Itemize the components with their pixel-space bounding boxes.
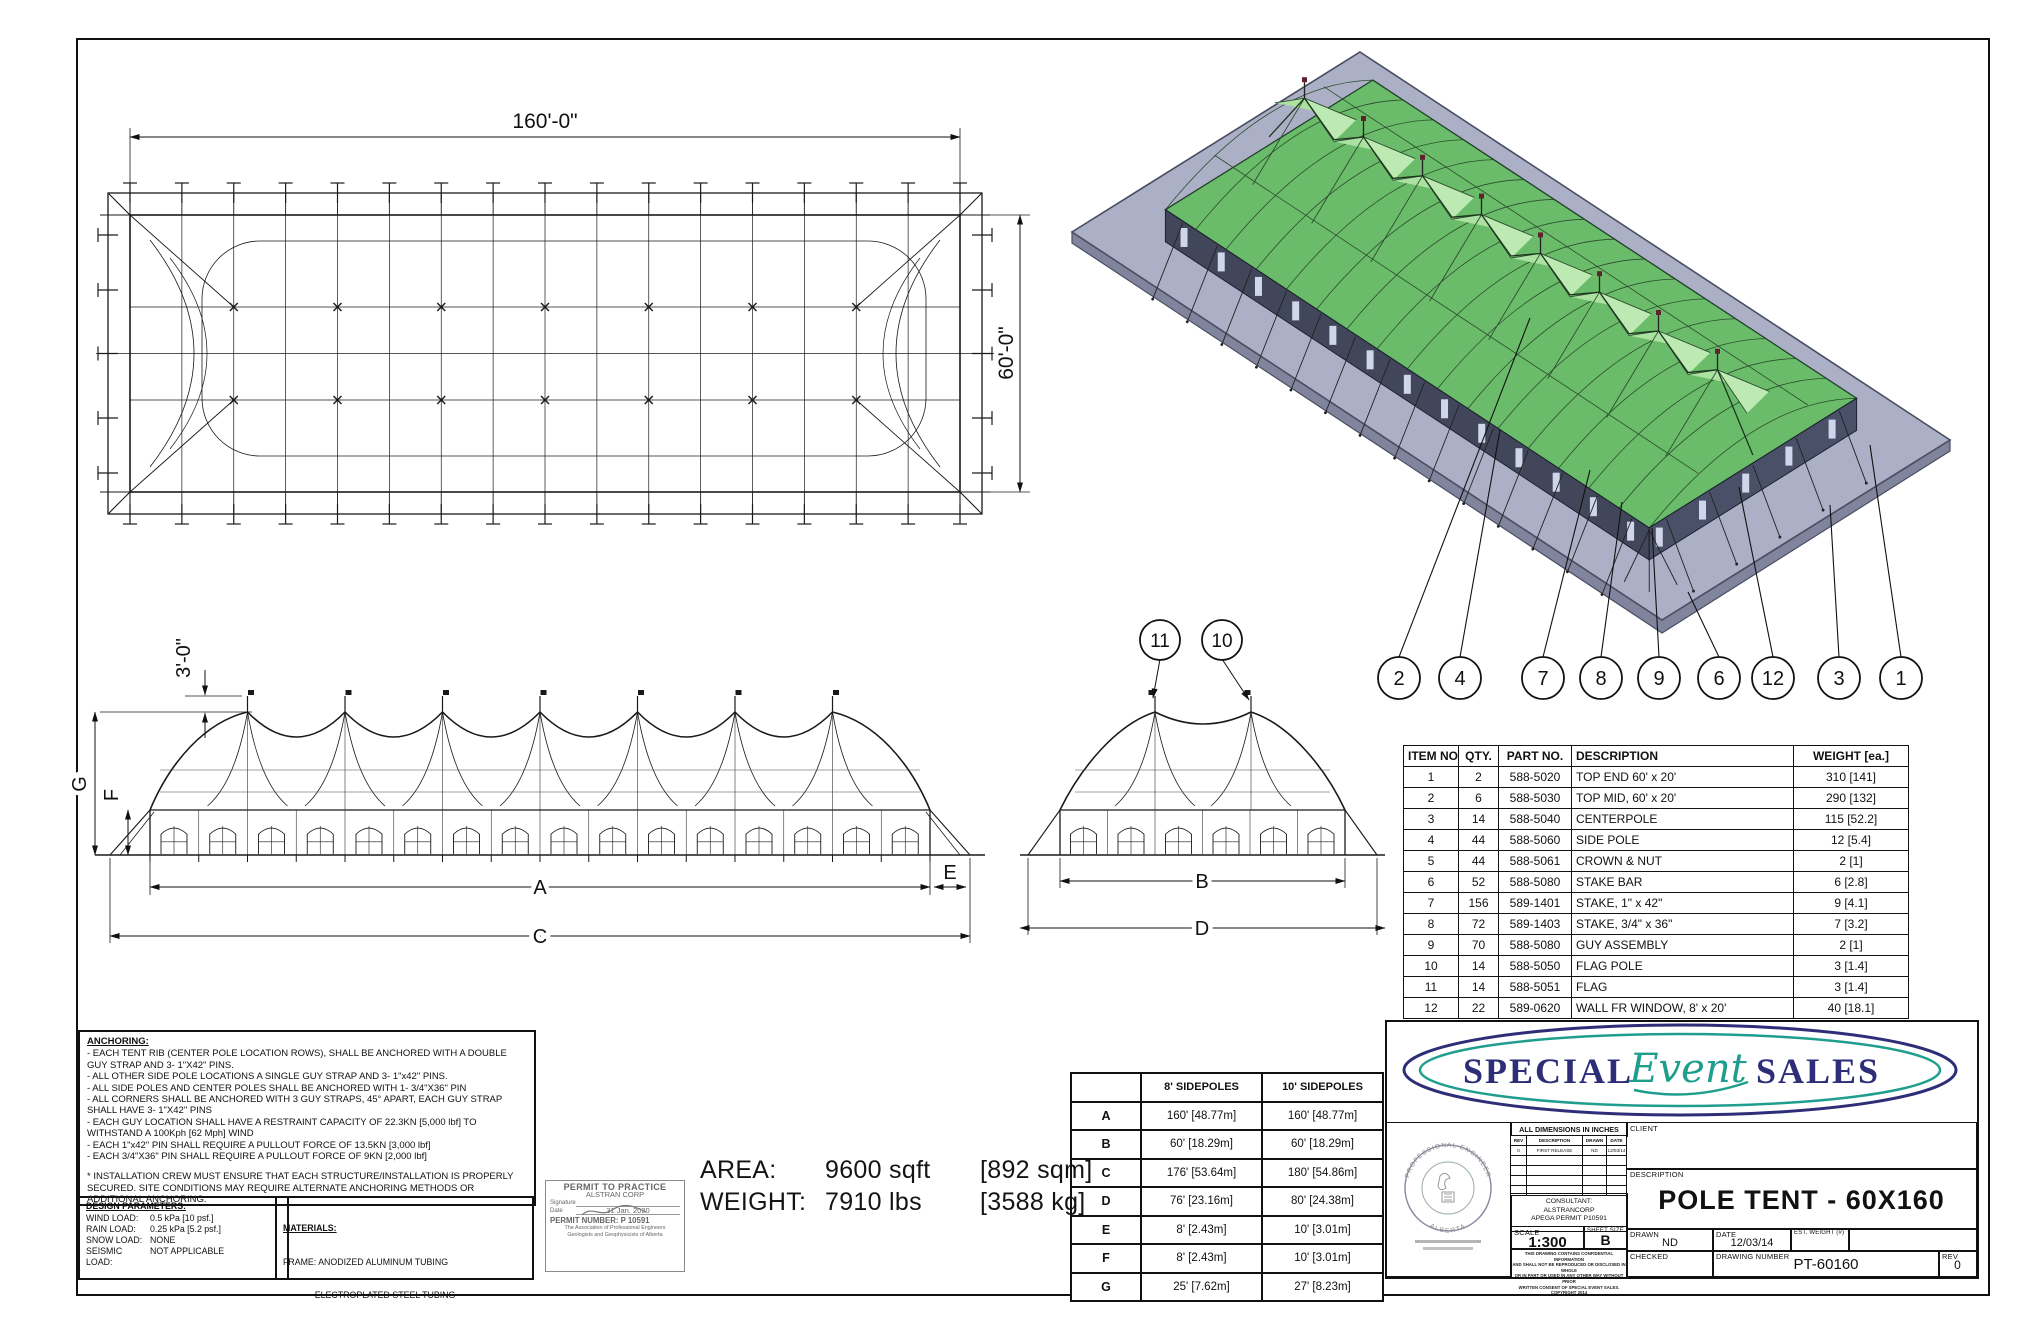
dimension-labels: 160'-0" 60'-0" 3'-0" G F A C E B D bbox=[69, 110, 1209, 948]
table-row: 970588-5080GUY ASSEMBLY2 [1] bbox=[1404, 935, 1909, 956]
stake-dot bbox=[1324, 411, 1327, 414]
dim-letter-g: G bbox=[69, 776, 91, 792]
column-header: DESCRIPTION bbox=[1572, 746, 1794, 767]
table-cell: 8 bbox=[1404, 914, 1459, 935]
plan-length-dimension: 160'-0" bbox=[512, 110, 577, 133]
table-cell: 588-5030 bbox=[1499, 788, 1572, 809]
consultant-permit: APEGA PERMIT P10591 bbox=[1511, 1215, 1627, 1224]
table-cell: 12 [5.4] bbox=[1794, 830, 1909, 851]
plan-width-dimension: 60'-0" bbox=[995, 326, 1018, 380]
table-cell: STAKE, 1" x 42" bbox=[1572, 893, 1794, 914]
table-cell: 5 bbox=[1404, 851, 1459, 872]
permit-company: ALSTRAN CORP bbox=[550, 1191, 680, 1198]
table-row: 872589-1403STAKE, 3/4" x 36"7 [3.2] bbox=[1404, 914, 1909, 935]
dim-letter-c: C bbox=[533, 926, 547, 948]
stake-dot bbox=[1255, 366, 1258, 369]
client-label: CLIENT bbox=[1627, 1123, 1976, 1134]
table-cell: 2 bbox=[1404, 788, 1459, 809]
table-cell: 14 bbox=[1459, 977, 1499, 998]
parameter-value: 0.5 kPa [10 psf.] bbox=[150, 1213, 281, 1224]
flag bbox=[1479, 194, 1484, 199]
table-row: 1222589-0620WALL FR WINDOW, 8' x 20'40 [… bbox=[1404, 998, 1909, 1019]
table-cell: 8' [2.43m] bbox=[1141, 1244, 1262, 1273]
design-parameters-title: DESIGN PARAMETERS: bbox=[86, 1201, 281, 1212]
table-cell: 589-0620 bbox=[1499, 998, 1572, 1019]
table-row: 26588-5030TOP MID, 60' x 20'290 [132] bbox=[1404, 788, 1909, 809]
fine-print-line: THIS DRAWING CONTAINS CONFIDENTIAL INFOR… bbox=[1511, 1251, 1627, 1262]
drawing-number-cell: DRAWING NUMBER PT-60160 bbox=[1712, 1250, 1940, 1277]
seal-cell bbox=[1385, 1122, 1512, 1277]
stake-dot bbox=[1462, 502, 1465, 505]
table-cell: 588-5050 bbox=[1499, 956, 1572, 977]
dim-letter-a: A bbox=[533, 877, 547, 899]
table-cell: STAKE BAR bbox=[1572, 872, 1794, 893]
flag bbox=[1597, 271, 1602, 276]
table-cell bbox=[1511, 1176, 1527, 1186]
table-cell: FIRST RELEASE bbox=[1527, 1146, 1583, 1156]
date-cell: DATE 12/03/14 bbox=[1712, 1228, 1792, 1252]
signature-label: Signature bbox=[550, 1200, 576, 1207]
est-weight-cell: EST. WEIGHT (#) bbox=[1790, 1228, 1850, 1252]
table-cell: E bbox=[1071, 1216, 1141, 1245]
column-header: ITEM NO. bbox=[1404, 746, 1459, 767]
dim-letter-e: E bbox=[943, 862, 956, 884]
table-cell: 10 bbox=[1404, 956, 1459, 977]
description-label: DESCRIPTION bbox=[1627, 1169, 1976, 1180]
dim-letter-d: D bbox=[1195, 918, 1209, 940]
permit-stamp: PERMIT TO PRACTICE ALSTRAN CORP Signatur… bbox=[545, 1180, 685, 1272]
callout-number: 6 bbox=[1713, 668, 1724, 690]
table-cell: 14 bbox=[1459, 956, 1499, 977]
table-cell: 25' [7.62m] bbox=[1141, 1273, 1262, 1302]
table-cell: 22 bbox=[1459, 998, 1499, 1019]
stake-dot bbox=[1428, 479, 1431, 482]
drawing-line bbox=[110, 810, 150, 855]
drawing-line bbox=[960, 194, 981, 215]
end-callout-balloons: 11 10 bbox=[1140, 620, 1242, 660]
flag bbox=[346, 690, 352, 695]
callout-number: 7 bbox=[1537, 668, 1548, 690]
table-cell: 44 bbox=[1459, 851, 1499, 872]
table-cell: 588-5080 bbox=[1499, 872, 1572, 893]
column-header: DESCRIPTION bbox=[1527, 1136, 1583, 1146]
area-metric-value: [892 sqm] bbox=[980, 1156, 1092, 1185]
anchoring-title: ANCHORING: bbox=[87, 1036, 527, 1047]
column-header: PART NO. bbox=[1499, 746, 1572, 767]
side-elevation-view bbox=[95, 690, 985, 862]
table-row: 652588-5080STAKE BAR6 [2.8] bbox=[1404, 872, 1909, 893]
table-cell bbox=[1583, 1156, 1607, 1166]
interior-clearance-line bbox=[202, 241, 926, 456]
table-cell: TOP MID, 60' x 20' bbox=[1572, 788, 1794, 809]
anchoring-notes: ANCHORING: - EACH TENT RIB (CENTER POLE … bbox=[78, 1030, 536, 1206]
checked-cell: CHECKED bbox=[1626, 1250, 1714, 1277]
confidentiality-fine-print: THIS DRAWING CONTAINS CONFIDENTIAL INFOR… bbox=[1510, 1248, 1628, 1279]
parameter-label: RAIN LOAD: bbox=[86, 1224, 150, 1235]
checked-label: CHECKED bbox=[1627, 1251, 1713, 1262]
table-cell: 3 bbox=[1404, 809, 1459, 830]
parameter-value: NONE bbox=[150, 1235, 281, 1246]
stake-dot bbox=[1601, 593, 1604, 596]
drawing-line bbox=[930, 810, 970, 855]
table-cell: 589-1401 bbox=[1499, 893, 1572, 914]
table-row: 314588-5040CENTERPOLE115 [52.2] bbox=[1404, 809, 1909, 830]
table-cell: 44 bbox=[1459, 830, 1499, 851]
table-cell bbox=[1511, 1156, 1527, 1166]
table-cell: 588-5051 bbox=[1499, 977, 1572, 998]
table-row: 12588-5020TOP END 60' x 20'310 [141] bbox=[1404, 767, 1909, 788]
table-row bbox=[1511, 1156, 1627, 1166]
area-label: AREA: bbox=[700, 1156, 825, 1185]
table-cell: 0 bbox=[1511, 1146, 1527, 1156]
weight-value: 7910 lbs bbox=[825, 1188, 980, 1217]
empty-cell bbox=[1848, 1228, 1977, 1252]
weight-metric-value: [3588 kg] bbox=[980, 1188, 1092, 1217]
table-cell: 72 bbox=[1459, 914, 1499, 935]
table-cell: 10' [3.01m] bbox=[1262, 1244, 1383, 1273]
flag bbox=[1420, 155, 1425, 160]
callout-number: 1 bbox=[1895, 668, 1906, 690]
fine-print-line: WRITTEN CONSENT OF SPECIAL EVENT SALES. … bbox=[1511, 1285, 1627, 1296]
table-cell: 6 [2.8] bbox=[1794, 872, 1909, 893]
table-cell: 3 [1.4] bbox=[1794, 977, 1909, 998]
callout-number: 2 bbox=[1393, 668, 1404, 690]
area-weight-summary: AREA: 9600 sqft [892 sqm] WEIGHT: 7910 l… bbox=[700, 1156, 1092, 1217]
callout-number: 11 bbox=[1150, 631, 1170, 652]
association-line: The Association of Professional Engineer… bbox=[550, 1225, 680, 1231]
materials-line: FRAME: ANODIZED ALUMINUM TUBING bbox=[283, 1257, 526, 1268]
table-cell: 60' [18.29m] bbox=[1262, 1130, 1383, 1159]
table-cell: A bbox=[1071, 1102, 1141, 1131]
callout-number: 10 bbox=[1211, 631, 1232, 652]
drawing-line bbox=[1830, 505, 1839, 657]
stake-dot bbox=[1779, 536, 1782, 539]
table-cell: 1 bbox=[1404, 767, 1459, 788]
drawing-line bbox=[926, 812, 960, 855]
drawing-line bbox=[960, 492, 981, 513]
table-cell: 60' [18.29m] bbox=[1141, 1130, 1262, 1159]
callout-number: 8 bbox=[1595, 668, 1606, 690]
table-row: G25' [7.62m]27' [8.23m] bbox=[1071, 1273, 1383, 1302]
table-cell: 4 bbox=[1404, 830, 1459, 851]
table-row: 7156589-1401STAKE, 1" x 42"9 [4.1] bbox=[1404, 893, 1909, 914]
table-cell: 176' [53.64m] bbox=[1141, 1159, 1262, 1188]
area-value: 9600 sqft bbox=[825, 1156, 980, 1185]
sheet-size-value: B bbox=[1584, 1232, 1627, 1248]
drawing-line bbox=[109, 492, 130, 513]
table-cell: FLAG POLE bbox=[1572, 956, 1794, 977]
table-cell bbox=[1527, 1156, 1583, 1166]
parameter-row: SNOW LOAD:NONE bbox=[86, 1235, 281, 1246]
table-cell: 7 bbox=[1404, 893, 1459, 914]
stake-dot bbox=[1497, 525, 1500, 528]
column-header: DATE bbox=[1607, 1136, 1627, 1146]
table-cell bbox=[1607, 1156, 1627, 1166]
table-cell bbox=[1583, 1166, 1607, 1176]
table-cell: CENTERPOLE bbox=[1572, 809, 1794, 830]
parameter-label: SEISMIC LOAD: bbox=[86, 1246, 150, 1268]
parts-table: ITEM NO. QTY. PART NO. DESCRIPTION WEIGH… bbox=[1403, 745, 1909, 1019]
table-header-row: REV DESCRIPTION DRAWN DATE bbox=[1511, 1136, 1627, 1146]
date-label: Date bbox=[550, 1208, 576, 1215]
table-cell: G bbox=[1071, 1273, 1141, 1302]
anchoring-note-line: - EACH 1"x42" PIN SHALL REQUIRE A PULLOU… bbox=[87, 1140, 527, 1151]
parameter-row: WIND LOAD:0.5 kPa [10 psf.] bbox=[86, 1213, 281, 1224]
dim-letter-f: F bbox=[101, 789, 123, 801]
drawing-line bbox=[1028, 810, 1060, 855]
table-cell: 11 bbox=[1404, 977, 1459, 998]
table-cell: FLAG bbox=[1572, 977, 1794, 998]
table-cell: 6 bbox=[1404, 872, 1459, 893]
est-weight-label: EST. WEIGHT (#) bbox=[1791, 1229, 1849, 1237]
table-header-row: 8' SIDEPOLES 10' SIDEPOLES bbox=[1071, 1073, 1383, 1102]
table-cell: TOP END 60' x 20' bbox=[1572, 767, 1794, 788]
column-header: QTY. bbox=[1459, 746, 1499, 767]
iso-callout-balloons: 2 4 7 8 9 6 12 3 1 bbox=[1378, 657, 1922, 699]
table-cell: 12/03/14 bbox=[1607, 1146, 1627, 1156]
table-cell: 160' [48.77m] bbox=[1141, 1102, 1262, 1131]
parameter-row: SEISMIC LOAD:NOT APPLICABLE bbox=[86, 1246, 281, 1268]
table-cell bbox=[1527, 1166, 1583, 1176]
dimensions-table: 8' SIDEPOLES 10' SIDEPOLES A160' [48.77m… bbox=[1070, 1072, 1384, 1302]
table-cell bbox=[1527, 1176, 1583, 1186]
table-cell: 588-5020 bbox=[1499, 767, 1572, 788]
drawing-path bbox=[1060, 712, 1345, 810]
table-cell: 588-5060 bbox=[1499, 830, 1572, 851]
leader-line bbox=[1153, 659, 1160, 698]
table-row: 544588-5061CROWN & NUT2 [1] bbox=[1404, 851, 1909, 872]
table-row bbox=[1511, 1176, 1627, 1186]
table-cell: 588-5040 bbox=[1499, 809, 1572, 830]
stake-dot bbox=[1186, 320, 1189, 323]
table-cell: 588-5080 bbox=[1499, 935, 1572, 956]
table-cell: 156 bbox=[1459, 893, 1499, 914]
table-cell bbox=[1583, 1176, 1607, 1186]
scale-cell: SCALE 1:300 bbox=[1510, 1226, 1585, 1250]
drawing-title: POLE TENT - 60X160 bbox=[1627, 1185, 1976, 1216]
table-row: D76' [23.16m]80' [24.38m] bbox=[1071, 1187, 1383, 1216]
column-header: WEIGHT [ea.] bbox=[1794, 746, 1909, 767]
consultant-name: ALSTRANCORP bbox=[1511, 1207, 1627, 1216]
materials-title: MATERIALS: bbox=[283, 1223, 526, 1234]
anchoring-note-line: - EACH GUY LOCATION SHALL HAVE A RESTRAI… bbox=[87, 1117, 527, 1140]
peak-height-dimension: 3'-0" bbox=[173, 638, 195, 678]
table-cell: F bbox=[1071, 1244, 1141, 1273]
drawing-line bbox=[109, 194, 130, 215]
flag bbox=[1656, 310, 1661, 315]
flag bbox=[443, 690, 449, 695]
stake-dot bbox=[1220, 343, 1223, 346]
materials-line: ELECTROPLATED STEEL TUBING bbox=[283, 1290, 526, 1301]
parameter-row: RAIN LOAD:0.25 kPa [5.2 psf.] bbox=[86, 1224, 281, 1235]
dim-letter-b: B bbox=[1195, 871, 1208, 893]
flag bbox=[1302, 77, 1307, 82]
revision-table: REV DESCRIPTION DRAWN DATE 0 FIRST RELEA… bbox=[1510, 1135, 1627, 1196]
table-cell: 9 bbox=[1404, 935, 1459, 956]
fine-print-line: AND SHALL NOT BE REPRODUCED OR DISCLOSED… bbox=[1511, 1262, 1627, 1273]
table-cell: STAKE, 3/4" x 36" bbox=[1572, 914, 1794, 935]
isometric-view bbox=[1072, 52, 1950, 657]
table-cell: 310 [141] bbox=[1794, 767, 1909, 788]
flag bbox=[541, 690, 547, 695]
drawn-cell: DRAWN ND bbox=[1626, 1228, 1714, 1252]
flag bbox=[248, 690, 254, 695]
flag bbox=[1538, 232, 1543, 237]
table-cell: 10' [3.01m] bbox=[1262, 1216, 1383, 1245]
table-row: E8' [2.43m]10' [3.01m] bbox=[1071, 1216, 1383, 1245]
stake-dot bbox=[1865, 482, 1868, 485]
table-cell: 2 [1] bbox=[1794, 935, 1909, 956]
table-cell: B bbox=[1071, 1130, 1141, 1159]
parameter-label: SNOW LOAD: bbox=[86, 1235, 150, 1246]
table-row: C176' [53.64m]180' [54.86m] bbox=[1071, 1159, 1383, 1188]
table-cell: 588-5061 bbox=[1499, 851, 1572, 872]
anchoring-note-line: - EACH 3/4"X36" PIN SHALL REQUIRE A PULL… bbox=[87, 1151, 527, 1162]
column-header: 10' SIDEPOLES bbox=[1262, 1073, 1383, 1102]
table-cell: 14 bbox=[1459, 809, 1499, 830]
parameter-label: WIND LOAD: bbox=[86, 1213, 150, 1224]
stake-dot bbox=[1290, 389, 1293, 392]
callout-number: 3 bbox=[1833, 668, 1844, 690]
table-cell: 76' [23.16m] bbox=[1141, 1187, 1262, 1216]
leader-line bbox=[1222, 659, 1249, 700]
stake-dot bbox=[1531, 548, 1534, 551]
table-cell: 589-1403 bbox=[1499, 914, 1572, 935]
table-cell: ND bbox=[1583, 1146, 1607, 1156]
column-header: REV bbox=[1511, 1136, 1527, 1146]
table-row: 444588-5060SIDE POLE12 [5.4] bbox=[1404, 830, 1909, 851]
drawing-sheet: 2 4 7 8 9 6 12 3 1 11 10 160'-0" 60'-0" … bbox=[0, 0, 2040, 1320]
table-cell: 160' [48.77m] bbox=[1262, 1102, 1383, 1131]
end-elevation-view bbox=[1020, 659, 1385, 855]
table-row: A160' [48.77m]160' [48.77m] bbox=[1071, 1102, 1383, 1131]
table-cell: 7 [3.2] bbox=[1794, 914, 1909, 935]
stake-dot bbox=[1566, 570, 1569, 573]
table-cell: CROWN & NUT bbox=[1572, 851, 1794, 872]
table-cell: GUY ASSEMBLY bbox=[1572, 935, 1794, 956]
stake-dot bbox=[1393, 457, 1396, 460]
table-cell: 52 bbox=[1459, 872, 1499, 893]
rev-cell: REV 0 bbox=[1938, 1250, 1977, 1277]
table-row: 0 FIRST RELEASE ND 12/03/14 bbox=[1511, 1146, 1627, 1156]
design-parameters: DESIGN PARAMETERS: WIND LOAD:0.5 kPa [10… bbox=[78, 1196, 289, 1280]
description-cell: DESCRIPTION POLE TENT - 60X160 bbox=[1626, 1168, 1977, 1230]
table-cell: 6 bbox=[1459, 788, 1499, 809]
table-cell: WALL FR WINDOW, 8' x 20' bbox=[1572, 998, 1794, 1019]
flag bbox=[1361, 116, 1366, 121]
flag bbox=[736, 690, 742, 695]
column-header: DRAWN bbox=[1583, 1136, 1607, 1146]
table-cell: 2 [1] bbox=[1794, 851, 1909, 872]
table-cell: SIDE POLE bbox=[1572, 830, 1794, 851]
flag bbox=[1715, 349, 1720, 354]
parameter-value: NOT APPLICABLE bbox=[150, 1246, 281, 1268]
column-header: 8' SIDEPOLES bbox=[1141, 1073, 1262, 1102]
table-cell bbox=[1607, 1166, 1627, 1176]
table-cell: 27' [8.23m] bbox=[1262, 1273, 1383, 1302]
table-cell: 2 bbox=[1459, 767, 1499, 788]
anchoring-note-line: - ALL CORNERS SHALL BE ANCHORED WITH 3 G… bbox=[87, 1094, 527, 1117]
table-cell: 8' [2.43m] bbox=[1141, 1216, 1262, 1245]
table-cell: 70 bbox=[1459, 935, 1499, 956]
table-cell: 12 bbox=[1404, 998, 1459, 1019]
table-row: B60' [18.29m]60' [18.29m] bbox=[1071, 1130, 1383, 1159]
table-row: F8' [2.43m]10' [3.01m] bbox=[1071, 1244, 1383, 1273]
stake-dot bbox=[1822, 509, 1825, 512]
stake-dot bbox=[1359, 434, 1362, 437]
anchoring-note-line: - ALL OTHER SIDE POLE LOCATIONS A SINGLE… bbox=[87, 1071, 527, 1082]
weight-label: WEIGHT: bbox=[700, 1188, 825, 1217]
table-cell bbox=[1607, 1176, 1627, 1186]
table-row: 1014588-5050FLAG POLE3 [1.4] bbox=[1404, 956, 1909, 977]
drawing-line bbox=[1345, 810, 1377, 855]
flag bbox=[638, 690, 644, 695]
parameter-value: 0.25 kPa [5.2 psf.] bbox=[150, 1224, 281, 1235]
stake-dot bbox=[1735, 563, 1738, 566]
materials-notes: MATERIALS: FRAME: ANODIZED ALUMINUM TUBI… bbox=[275, 1196, 534, 1280]
table-cell: 115 [52.2] bbox=[1794, 809, 1909, 830]
fine-print-line: OR IN PART OR USED IN ANY OTHER WAY WITH… bbox=[1511, 1273, 1627, 1284]
consultant-label: CONSULTANT: bbox=[1511, 1198, 1627, 1207]
client-cell: CLIENT bbox=[1626, 1122, 1977, 1170]
signature-squiggle bbox=[580, 1203, 650, 1219]
table-cell: 9 [4.1] bbox=[1794, 893, 1909, 914]
drawing-line bbox=[120, 812, 154, 855]
callout-number: 12 bbox=[1762, 668, 1784, 690]
flag bbox=[833, 690, 839, 695]
table-cell bbox=[1511, 1166, 1527, 1176]
table-header-row: ITEM NO. QTY. PART NO. DESCRIPTION WEIGH… bbox=[1404, 746, 1909, 767]
table-row: 1114588-5051FLAG3 [1.4] bbox=[1404, 977, 1909, 998]
stake-dot bbox=[1151, 298, 1154, 301]
table-cell: 3 [1.4] bbox=[1794, 956, 1909, 977]
association-line: Geologists and Geophysicists of Alberta bbox=[550, 1232, 680, 1238]
callout-number: 4 bbox=[1454, 668, 1465, 690]
table-cell: 80' [24.38m] bbox=[1262, 1187, 1383, 1216]
table-cell: 180' [54.86m] bbox=[1262, 1159, 1383, 1188]
anchoring-note-line: - ALL SIDE POLES AND CENTER POLES SHALL … bbox=[87, 1083, 527, 1094]
table-cell: 40 [18.1] bbox=[1794, 998, 1909, 1019]
stake-dot bbox=[1692, 590, 1695, 593]
callout-number: 9 bbox=[1653, 668, 1664, 690]
table-row bbox=[1511, 1166, 1627, 1176]
plan-view bbox=[96, 183, 994, 524]
anchoring-note-line: - EACH TENT RIB (CENTER POLE LOCATION RO… bbox=[87, 1048, 527, 1071]
table-cell: 290 [132] bbox=[1794, 788, 1909, 809]
sheet-size-cell: SHEET SIZE B bbox=[1583, 1226, 1628, 1250]
column-header bbox=[1071, 1073, 1141, 1102]
